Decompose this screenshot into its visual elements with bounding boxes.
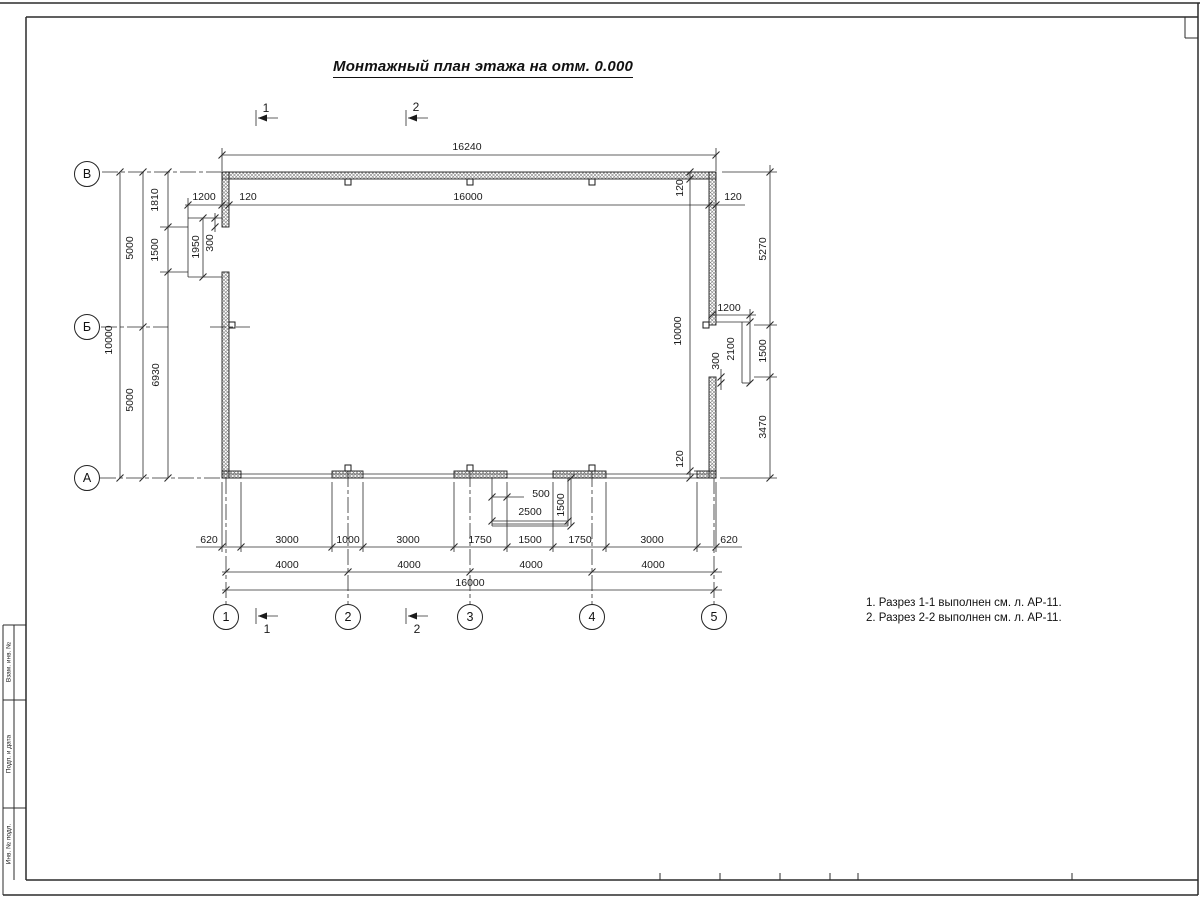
dim-label: 16000 xyxy=(455,578,484,589)
dim-label: 120 xyxy=(675,450,686,468)
axis-marker-2: 2 xyxy=(335,604,361,630)
dim-label: 1200 xyxy=(717,303,740,314)
dim-label: 2100 xyxy=(726,337,737,360)
axis-label: 5 xyxy=(711,610,718,624)
note-line: 2. Разрез 2-2 выполнен см. л. АР-11. xyxy=(866,611,1062,626)
dim-label: 3000 xyxy=(396,535,419,546)
axis-label: В xyxy=(83,167,91,181)
dim-label: 120 xyxy=(724,192,742,203)
dim-label: 1950 xyxy=(191,235,202,258)
axis-marker-3: 3 xyxy=(457,604,483,630)
dim-label: 10000 xyxy=(104,325,115,354)
dim-label: 3470 xyxy=(758,415,769,438)
dim-label: 4000 xyxy=(397,560,420,571)
axis-marker-1: 1 xyxy=(213,604,239,630)
dim-label: 1200 xyxy=(192,192,215,203)
drawing-title: Монтажный план этажа на отм. 0.000 xyxy=(333,58,633,78)
dim-label: 1500 xyxy=(556,493,567,516)
dim-label: 5270 xyxy=(758,237,769,260)
axis-label: А xyxy=(83,471,91,485)
dim-label: 3000 xyxy=(640,535,663,546)
dim-label: 1750 xyxy=(568,535,591,546)
dim-label: 10000 xyxy=(673,316,684,345)
stamp-label: Инв. № подл. xyxy=(6,824,13,865)
axis-marker-А: А xyxy=(74,465,100,491)
dim-label: 6930 xyxy=(151,363,162,386)
dim-label: 300 xyxy=(711,352,722,370)
axis-marker-В: В xyxy=(74,161,100,187)
dim-label: 4000 xyxy=(275,560,298,571)
dim-label: 120 xyxy=(239,192,257,203)
dim-label: 500 xyxy=(532,489,550,500)
note-line: 1. Разрез 1-1 выполнен см. л. АР-11. xyxy=(866,596,1062,611)
notes-block: 1. Разрез 1-1 выполнен см. л. АР-11. 2. … xyxy=(866,596,1062,626)
dim-label: 16240 xyxy=(452,142,481,153)
section-mark-label: 2 xyxy=(413,101,420,113)
axis-label: 1 xyxy=(223,610,230,624)
axis-label: 3 xyxy=(467,610,474,624)
dim-label: 120 xyxy=(675,179,686,197)
axis-marker-5: 5 xyxy=(701,604,727,630)
section-mark-label: 1 xyxy=(263,102,270,114)
dim-label: 4000 xyxy=(641,560,664,571)
dim-label: 2500 xyxy=(518,507,541,518)
dim-label: 1810 xyxy=(150,188,161,211)
dim-label: 1500 xyxy=(518,535,541,546)
dim-label: 3000 xyxy=(275,535,298,546)
axis-marker-Б: Б xyxy=(74,314,100,340)
dim-label: 1000 xyxy=(336,535,359,546)
dim-label: 620 xyxy=(200,535,218,546)
axis-marker-4: 4 xyxy=(579,604,605,630)
section-mark-label: 1 xyxy=(264,623,271,635)
stamp-label: Подп. и дата xyxy=(6,735,13,773)
drawing-sheet: Монтажный план этажа на отм. 0.000 1. Ра… xyxy=(0,0,1200,900)
dim-label: 620 xyxy=(720,535,738,546)
dim-label: 1750 xyxy=(468,535,491,546)
axis-label: Б xyxy=(83,320,91,334)
dim-label: 1500 xyxy=(150,238,161,261)
axis-label: 2 xyxy=(345,610,352,624)
dim-label: 5000 xyxy=(125,236,136,259)
axis-label: 4 xyxy=(589,610,596,624)
section-mark-label: 2 xyxy=(414,623,421,635)
stamp-label: Взам. инв. № xyxy=(6,642,13,682)
plan-linework xyxy=(0,0,1200,900)
dim-label: 4000 xyxy=(519,560,542,571)
dim-label: 300 xyxy=(205,234,216,252)
dim-label: 1500 xyxy=(758,339,769,362)
dim-label: 5000 xyxy=(125,388,136,411)
dim-label: 16000 xyxy=(453,192,482,203)
